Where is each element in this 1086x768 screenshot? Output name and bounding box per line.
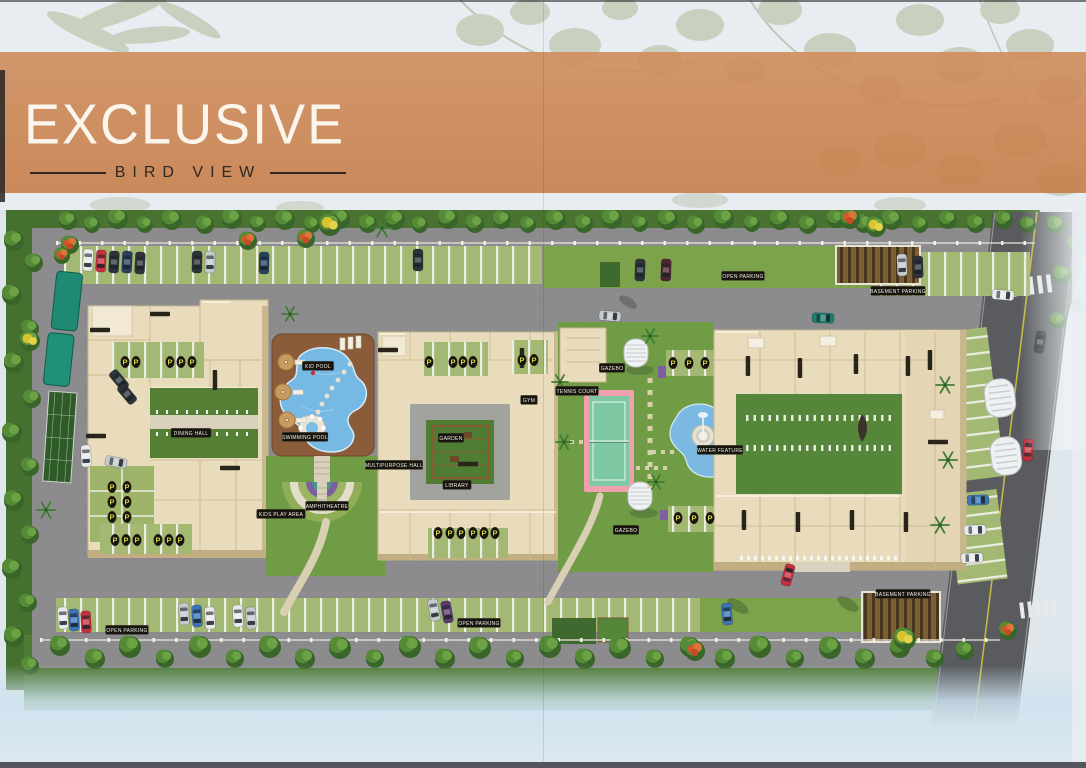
parking-p-glyph: P [177, 536, 182, 545]
parking-p-glyph: P [481, 529, 486, 538]
facility-label-text: KIDS PLAY AREA [259, 512, 304, 518]
facility-label-text: OPEN PARKING [458, 621, 499, 627]
parking-p-glyph: P [492, 529, 497, 538]
facility-label-text: TENNIS COURT [556, 389, 597, 395]
roof-strip [458, 462, 478, 467]
parking-p-glyph: P [702, 359, 707, 368]
car [259, 252, 269, 274]
roof-strip [798, 358, 803, 378]
car [661, 259, 672, 281]
central-lawn [736, 394, 902, 494]
facility-label: LIBRARY [443, 480, 471, 489]
car [204, 607, 215, 629]
parking-marker: P [121, 356, 130, 368]
facility-label-text: KID POOL [305, 364, 331, 370]
page-title: EXCLUSIVE [24, 93, 345, 157]
car [635, 259, 646, 281]
parking-marker: P [154, 534, 163, 546]
facility-label: GAZEBO [599, 363, 624, 372]
parking-marker: P [690, 512, 699, 524]
parking-marker: P [518, 354, 527, 366]
parking-marker: P [177, 356, 186, 368]
tree [546, 210, 566, 230]
car [95, 250, 106, 272]
roof-strip [904, 512, 909, 532]
car [721, 603, 733, 626]
car [245, 607, 256, 629]
parking-p-glyph: P [675, 514, 680, 523]
parking-p-glyph: P [109, 483, 114, 492]
facility-label: GARDEN [438, 433, 463, 442]
parking-marker: P [459, 356, 468, 368]
car [81, 445, 92, 467]
parking-p-glyph: P [124, 498, 129, 507]
car [205, 251, 215, 273]
facility-label-text: WATER FEATURE [697, 448, 743, 454]
tree [770, 210, 790, 230]
roof-strip [742, 510, 747, 530]
parking-marker: P [108, 496, 117, 508]
tennis-court [584, 390, 634, 492]
car [967, 495, 989, 506]
car [413, 249, 423, 271]
roof-strip [90, 328, 110, 333]
car [897, 254, 908, 276]
tree [658, 210, 678, 230]
car [192, 251, 202, 273]
facility-label-text: GAZEBO [601, 366, 624, 372]
facility-label: BASEMENT PARKING [870, 286, 926, 295]
facility-label-text: DINING HALL [174, 431, 209, 437]
facility-label-text: LIBRARY [445, 483, 469, 489]
parking-marker: P [122, 534, 131, 546]
fenced-court [43, 391, 77, 483]
facility-label-text: SWIMMING POOL [282, 435, 328, 441]
facility-label: DINING HALL [171, 428, 211, 437]
facility-label-text: BASEMENT PARKING [875, 592, 931, 598]
roof-strip [378, 348, 398, 353]
parking-p-glyph: P [133, 358, 138, 367]
parking-p-glyph: P [122, 358, 127, 367]
car [599, 310, 622, 322]
parking-p-glyph: P [109, 498, 114, 507]
basement-ramp [836, 246, 920, 284]
parking-p-glyph: P [519, 356, 524, 365]
car [232, 605, 243, 627]
page-edge-left [0, 70, 5, 202]
parking-marker: P [111, 534, 120, 546]
parking-p-glyph: P [447, 529, 452, 538]
parking-marker: P [434, 527, 443, 539]
facility-label: AMPHITHEATRE [306, 501, 349, 510]
parking-marker: P [123, 511, 132, 523]
page-fold-line [543, 0, 544, 768]
page-subtitle: BIRD VIEW [115, 164, 262, 182]
parking-marker: P [176, 534, 185, 546]
subtitle-row: BIRD VIEW [30, 164, 346, 182]
parking-p-glyph: P [460, 358, 465, 367]
parking-marker: P [166, 356, 175, 368]
facility-label: KID POOL [302, 361, 333, 370]
parking-p-glyph: P [707, 514, 712, 523]
facility-label: WATER FEATURE [697, 445, 743, 454]
parking-marker: P [123, 496, 132, 508]
roof-strip [796, 512, 801, 532]
parking-marker: P [425, 356, 434, 368]
roof-strip [850, 510, 855, 530]
facility-label: MULTIPURPOSE HALL [365, 460, 423, 469]
car [108, 251, 119, 273]
facility-label-text: AMPHITHEATRE [306, 504, 349, 510]
parking-marker: P [480, 527, 489, 539]
subtitle-rule-right [270, 172, 346, 174]
parking-marker: P [108, 511, 117, 523]
roof-strip [928, 350, 933, 370]
parking-marker: P [701, 357, 710, 369]
facility-label-text: GYM [523, 398, 535, 404]
car [812, 313, 834, 324]
brochure-page: EXCLUSIVE BIRD VIEW [0, 0, 1086, 768]
facility-label: OPEN PARKING [106, 625, 149, 634]
parking-p-glyph: P [189, 358, 194, 367]
parking-marker: P [123, 481, 132, 493]
parking-p-glyph: P [155, 536, 160, 545]
right-edge-fade [1072, 210, 1086, 768]
car [964, 525, 986, 536]
facility-label-text: OPEN PARKING [722, 274, 763, 280]
center-building-cluster [378, 332, 560, 560]
parking-p-glyph: P [166, 536, 171, 545]
facility-label-text: MULTIPURPOSE HALL [365, 463, 423, 469]
roof-strip [220, 466, 240, 471]
parking-marker: P [674, 512, 683, 524]
parking-p-glyph: P [531, 356, 536, 365]
parking-p-glyph: P [450, 358, 455, 367]
parking-p-glyph: P [670, 359, 675, 368]
parking-p-glyph: P [435, 529, 440, 538]
facility-label: TENNIS COURT [556, 386, 599, 395]
tree [385, 210, 405, 230]
parking-marker: P [446, 527, 455, 539]
page-edge-top [0, 0, 1086, 2]
pool-stairs [314, 456, 330, 482]
parking-p-glyph: P [470, 358, 475, 367]
facility-label-text: GAZEBO [615, 528, 638, 534]
pool-zone [266, 334, 386, 612]
facility-label-text: GARDEN [439, 436, 462, 442]
roof-strip [150, 312, 170, 317]
parking-marker: P [449, 356, 458, 368]
parking-p-glyph: P [112, 536, 117, 545]
parking-marker: P [132, 356, 141, 368]
parking-marker: P [706, 512, 715, 524]
car [134, 252, 145, 274]
car [121, 251, 132, 273]
parking-marker: P [188, 356, 197, 368]
parking-marker: P [133, 534, 142, 546]
tree [162, 210, 182, 230]
parking-p-glyph: P [124, 513, 129, 522]
parking-p-glyph: P [134, 536, 139, 545]
parking-p-glyph: P [686, 359, 691, 368]
facility-label-text: OPEN PARKING [106, 628, 147, 634]
facility-label: OPEN PARKING [722, 271, 765, 280]
facility-label: GAZEBO [613, 525, 638, 534]
parking-marker: P [457, 527, 466, 539]
car [992, 289, 1015, 301]
facility-label: GYM [521, 395, 538, 404]
car [191, 605, 202, 627]
roof-strip [86, 434, 106, 439]
pool-ball [311, 371, 315, 375]
car [178, 603, 189, 625]
roof-strip [213, 370, 218, 390]
parking-p-glyph: P [691, 514, 696, 523]
parking-marker: P [165, 534, 174, 546]
page-edge-bottom [0, 762, 1086, 768]
parking-p-glyph: P [178, 358, 183, 367]
car [57, 607, 68, 629]
facility-label: SWIMMING POOL [282, 432, 328, 441]
facility-label-text: BASEMENT PARKING [870, 289, 926, 295]
parking-p-glyph: P [124, 483, 129, 492]
parking-marker: P [669, 357, 678, 369]
parking-marker: P [108, 481, 117, 493]
car [913, 256, 924, 278]
roof-strip [928, 440, 948, 445]
parking-p-glyph: P [123, 536, 128, 545]
roof-strip [906, 356, 911, 376]
parking-marker: P [685, 357, 694, 369]
car [961, 553, 983, 564]
parking-p-glyph: P [109, 513, 114, 522]
parking-p-glyph: P [167, 358, 172, 367]
parking-marker: P [469, 527, 478, 539]
parking-p-glyph: P [458, 529, 463, 538]
parking-marker: P [469, 356, 478, 368]
car [82, 249, 93, 271]
tree [275, 210, 295, 230]
parking-marker: P [530, 354, 539, 366]
roof-strip [746, 356, 751, 376]
facility-label: OPEN PARKING [458, 618, 501, 627]
facility-label: BASEMENT PARKING [875, 589, 931, 598]
parking-p-glyph: P [470, 529, 475, 538]
car [80, 611, 91, 633]
subtitle-rule-left [30, 172, 106, 174]
car [68, 609, 79, 631]
facility-label: KIDS PLAY AREA [257, 509, 306, 518]
roof-strip [854, 354, 859, 374]
parking-marker: P [491, 527, 500, 539]
parking-p-glyph: P [426, 358, 431, 367]
